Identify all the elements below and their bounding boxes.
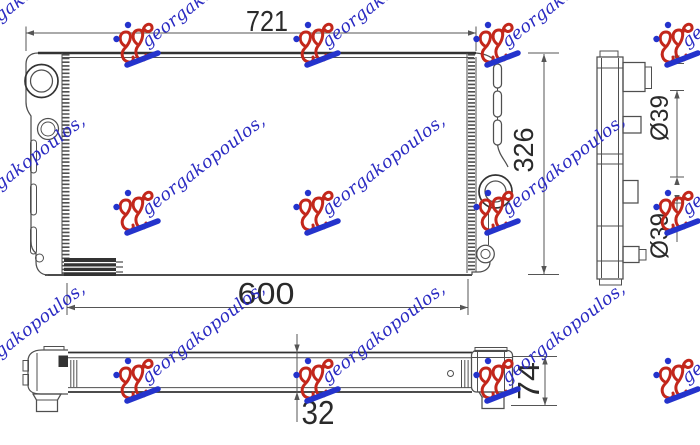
dim-32-label: 32 xyxy=(302,394,335,431)
dim-upper-pipe: Ø39 xyxy=(646,49,684,152)
lower-fitting-inner xyxy=(481,249,490,258)
dimensions: 721 326 600 32 74 xyxy=(26,6,684,431)
right-tank-top-corner xyxy=(476,53,497,64)
left-connector-bracket xyxy=(33,394,61,412)
bottom-right-connector xyxy=(448,348,513,409)
left-port-inner xyxy=(41,122,55,136)
bottom-view xyxy=(23,347,513,412)
dim-overall-depth: 74 xyxy=(511,357,557,406)
bottom-pin-hole xyxy=(448,371,454,377)
side-bottom-cap xyxy=(600,279,622,285)
dim-326-label: 326 xyxy=(508,128,539,173)
left-connector-plug xyxy=(59,356,69,368)
outlet-fitting-inner xyxy=(485,181,506,202)
dim-721-label: 721 xyxy=(246,6,288,38)
side-port-3 xyxy=(623,181,638,204)
arrowhead xyxy=(541,266,546,274)
left-drain-hole xyxy=(36,254,44,262)
arrowhead xyxy=(294,392,299,400)
oil-cooler-pins xyxy=(116,262,123,272)
right-tank xyxy=(472,53,512,275)
arrowhead xyxy=(468,30,476,35)
side-upper-pipe-lip xyxy=(645,67,652,89)
left-connector-hatch xyxy=(71,360,77,387)
right-bracket-2 xyxy=(494,91,502,117)
left-tank xyxy=(25,53,59,275)
drawing-svg: 721 326 600 32 74 xyxy=(0,0,700,445)
side-port-2 xyxy=(623,117,641,134)
right-connector-inner-lines xyxy=(472,351,513,392)
radiator-technical-drawing: 721 326 600 32 74 xyxy=(0,0,700,445)
arrowhead xyxy=(26,30,34,35)
dim-74-label: 74 xyxy=(511,362,546,400)
lower-fitting-outer xyxy=(477,245,495,263)
arrowhead xyxy=(541,54,546,62)
dim-overall-width: 721 xyxy=(26,6,476,51)
right-tank-bottom-corner xyxy=(472,262,490,275)
right-bracket-3 xyxy=(494,120,502,145)
arrowhead xyxy=(294,345,299,353)
outlet-pipe-curve xyxy=(498,145,509,167)
bottom-left-connector xyxy=(23,347,77,412)
right-connector-bracket xyxy=(479,392,507,409)
front-view xyxy=(25,53,512,276)
side-upper-pipe xyxy=(623,63,645,92)
dim-core-width: 600 xyxy=(67,276,468,315)
side-division-lines xyxy=(597,68,623,261)
dim-lower-pipe: Ø39 xyxy=(646,149,684,259)
filler-neck-inner xyxy=(31,70,53,92)
side-view xyxy=(597,51,652,285)
dim-core-depth: 32 xyxy=(294,334,334,431)
dim-overall-height: 326 xyxy=(508,53,559,275)
arrowhead xyxy=(674,195,679,203)
arrowhead xyxy=(674,91,679,99)
side-body xyxy=(597,57,623,279)
arrowhead xyxy=(460,305,468,310)
side-lower-pipe xyxy=(623,247,639,263)
right-bracket-1 xyxy=(494,64,502,88)
dim-o39-bottom-label: Ø39 xyxy=(646,213,674,259)
arrowhead xyxy=(674,56,679,64)
outlet-fitting-outer xyxy=(479,175,512,208)
side-top-cap xyxy=(600,51,618,57)
dim-600-label: 600 xyxy=(238,276,295,311)
oil-cooler-block xyxy=(64,258,123,276)
dim-o39-top-label: Ø39 xyxy=(646,95,674,141)
right-connector-hatch xyxy=(462,360,469,388)
arrowhead xyxy=(674,177,679,185)
arrowhead xyxy=(67,305,75,310)
side-body-inner-lines xyxy=(602,58,619,278)
